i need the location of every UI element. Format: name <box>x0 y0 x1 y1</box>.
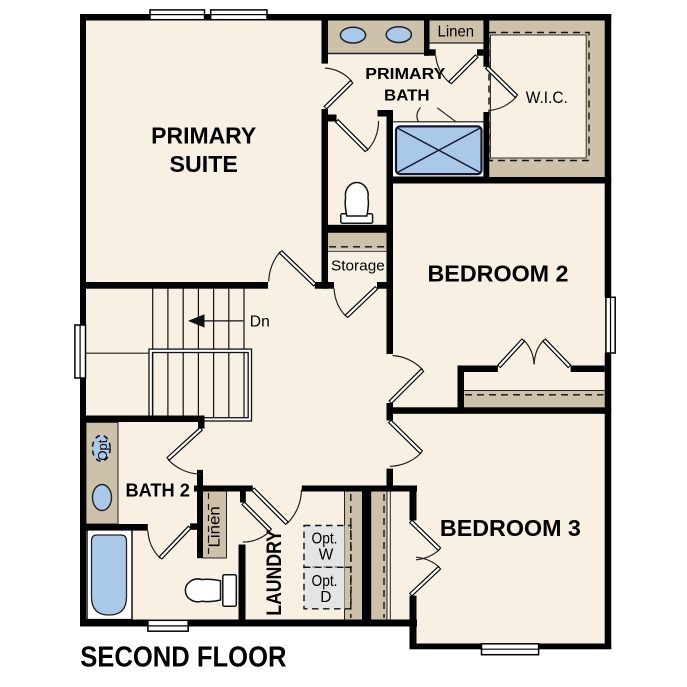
svg-text:D: D <box>320 589 331 606</box>
svg-text:BEDROOM 3: BEDROOM 3 <box>440 515 581 541</box>
svg-text:Dn: Dn <box>250 314 270 331</box>
svg-text:PRIMARY: PRIMARY <box>365 66 445 83</box>
svg-text:BEDROOM 2: BEDROOM 2 <box>428 261 569 287</box>
svg-text:Opt.: Opt. <box>312 573 338 590</box>
svg-text:Storage: Storage <box>331 259 385 275</box>
svg-text:W: W <box>319 547 334 564</box>
svg-text:SUITE: SUITE <box>170 151 238 177</box>
svg-text:Linen: Linen <box>207 506 224 547</box>
svg-text:W.I.C.: W.I.C. <box>526 88 568 107</box>
svg-text:PRIMARY: PRIMARY <box>151 123 256 149</box>
svg-text:BATH: BATH <box>384 88 430 105</box>
svg-text:SECOND FLOOR: SECOND FLOOR <box>80 641 286 673</box>
svg-text:Linen: Linen <box>438 24 475 41</box>
svg-text:Opt.: Opt. <box>312 530 338 547</box>
svg-text:BATH 2: BATH 2 <box>125 480 190 501</box>
svg-text:Opt.: Opt. <box>95 436 110 461</box>
svg-text:LAUNDRY: LAUNDRY <box>263 530 286 616</box>
